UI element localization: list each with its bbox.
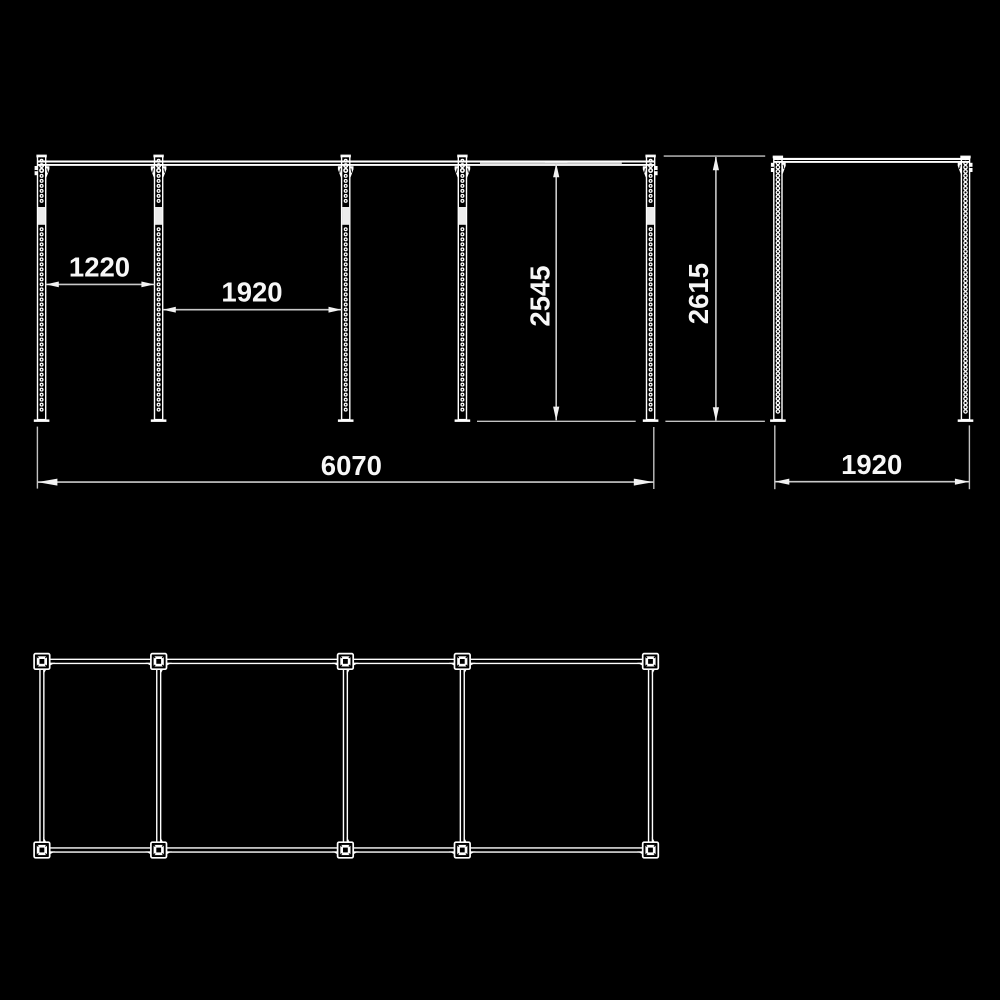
svg-text:1920: 1920 <box>841 449 902 480</box>
svg-text:2545: 2545 <box>524 265 555 326</box>
svg-text:1920: 1920 <box>221 277 282 308</box>
svg-text:1220: 1220 <box>69 251 130 282</box>
svg-text:2615: 2615 <box>683 263 714 324</box>
svg-text:6070: 6070 <box>321 450 382 481</box>
